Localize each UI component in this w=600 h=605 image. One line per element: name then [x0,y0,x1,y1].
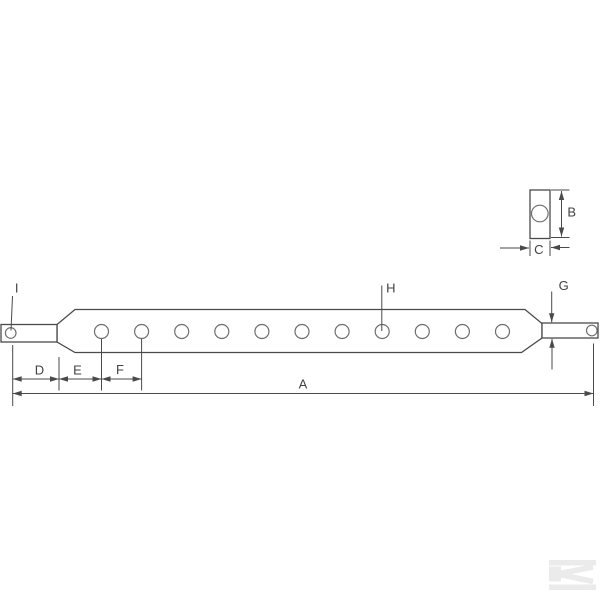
label-H: H [386,281,395,296]
kramp-logo-arm [560,575,593,582]
dim-F-arrow-end [133,376,142,381]
dim-D-arrow-end [50,376,59,381]
label-I: I [15,281,19,296]
dim-C-right-arrow-end [551,245,560,250]
label-E: E [73,363,82,378]
kramp-logo-stem [549,567,561,582]
dim-C-left-arrow-end [520,245,529,250]
kramp-logo-bar [549,585,596,591]
dim-E-arrow-start [59,376,68,381]
drawing-canvas: ABCDEFGHI [0,0,600,600]
label-G: G [559,278,569,293]
technical-drawing: ABCDEFGHI [0,0,600,600]
dim-E-arrow-end [93,376,102,381]
label-B: B [567,205,576,220]
dim-G-top-arrow-end [549,313,554,322]
label-C: C [534,242,543,257]
dim-B-arrow-start [559,191,564,200]
end-view-body [530,190,550,239]
label-A: A [299,377,308,392]
dim-G-bottom-arrow-end [549,339,554,348]
kramp-logo-arm [560,567,593,574]
dim-B-arrow-end [559,228,564,237]
left-pin [1,325,57,343]
dim-D-arrow-start [13,376,22,381]
kramp-logo-bar [549,560,596,566]
label-D: D [35,363,44,378]
dim-F-arrow-start [102,376,111,381]
dim-A-arrow-end [585,391,594,396]
label-F: F [116,362,124,377]
dim-A-arrow-start [13,391,22,396]
